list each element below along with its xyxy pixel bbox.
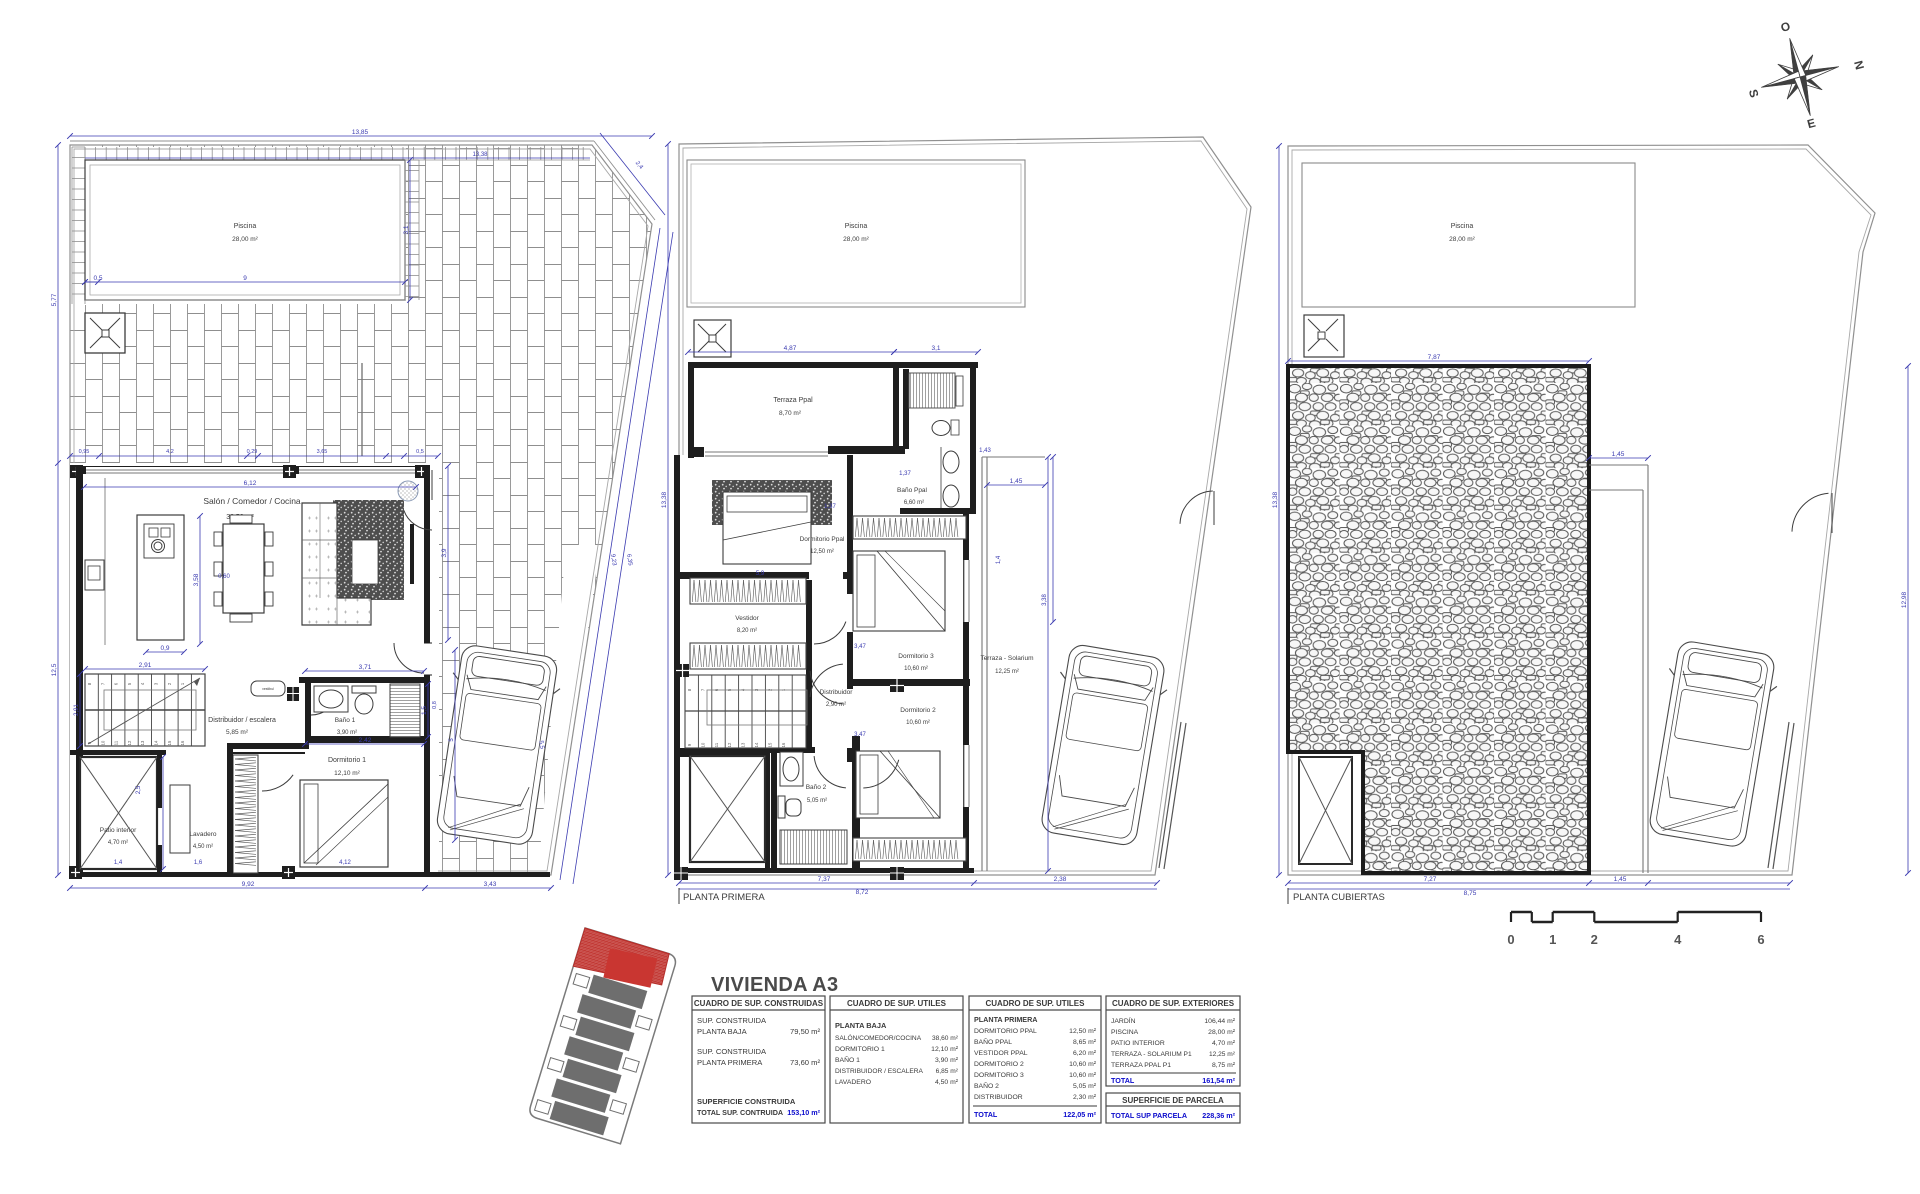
svg-text:8,20 m²: 8,20 m² bbox=[737, 628, 757, 634]
svg-text:PLANTA PRIMERA: PLANTA PRIMERA bbox=[974, 1015, 1038, 1024]
svg-text:7,87: 7,87 bbox=[1428, 354, 1441, 361]
svg-text:13,38: 13,38 bbox=[1272, 491, 1279, 508]
svg-text:1,5: 1,5 bbox=[421, 706, 428, 715]
svg-text:13,38: 13,38 bbox=[472, 152, 488, 158]
svg-text:12: 12 bbox=[727, 742, 732, 747]
svg-text:Piscina: Piscina bbox=[1451, 223, 1474, 230]
svg-text:VESTIDOR PPAL: VESTIDOR PPAL bbox=[974, 1050, 1028, 1057]
svg-text:2,91: 2,91 bbox=[74, 704, 80, 716]
svg-text:0,29: 0,29 bbox=[247, 449, 258, 455]
svg-text:CUADRO DE SUP. UTILES: CUADRO DE SUP. UTILES bbox=[847, 999, 947, 1008]
svg-text:LAVADERO: LAVADERO bbox=[835, 1079, 871, 1086]
svg-text:3,9: 3,9 bbox=[441, 548, 448, 557]
svg-text:161,54 m²: 161,54 m² bbox=[1202, 1076, 1235, 1085]
svg-text:9: 9 bbox=[243, 275, 247, 282]
svg-text:2,30 m²: 2,30 m² bbox=[1073, 1094, 1097, 1101]
svg-text:TOTAL: TOTAL bbox=[974, 1110, 998, 1119]
svg-text:16: 16 bbox=[781, 742, 786, 747]
svg-text:vestibul: vestibul bbox=[262, 687, 274, 691]
svg-text:1,45: 1,45 bbox=[1614, 876, 1627, 883]
svg-text:0,5: 0,5 bbox=[416, 449, 424, 455]
svg-text:Patio interior: Patio interior bbox=[100, 827, 137, 834]
svg-text:SUP. CONSTRUIDA: SUP. CONSTRUIDA bbox=[697, 1047, 767, 1056]
svg-text:0,8: 0,8 bbox=[432, 701, 438, 709]
svg-text:4,2: 4,2 bbox=[166, 449, 174, 455]
svg-text:4,12: 4,12 bbox=[339, 860, 351, 866]
svg-text:DORMITORIO PPAL: DORMITORIO PPAL bbox=[974, 1028, 1037, 1035]
svg-text:Dormitorio 2: Dormitorio 2 bbox=[900, 707, 936, 714]
svg-text:PLANTA CUBIERTAS: PLANTA CUBIERTAS bbox=[1293, 892, 1385, 903]
svg-text:12,98: 12,98 bbox=[1901, 591, 1908, 608]
svg-text:28,00 m²: 28,00 m² bbox=[1208, 1029, 1236, 1036]
svg-text:PATIO INTERIOR: PATIO INTERIOR bbox=[1111, 1040, 1165, 1047]
svg-text:13,85: 13,85 bbox=[352, 129, 369, 136]
svg-text:3,58: 3,58 bbox=[193, 573, 200, 586]
svg-text:122,05 m²: 122,05 m² bbox=[1063, 1110, 1096, 1119]
svg-text:10: 10 bbox=[100, 740, 105, 745]
svg-text:PLANTA BAJA: PLANTA BAJA bbox=[835, 1021, 887, 1030]
svg-text:28,00 m²: 28,00 m² bbox=[843, 236, 869, 243]
svg-text:Baño Ppal: Baño Ppal bbox=[897, 487, 928, 494]
svg-text:5,77: 5,77 bbox=[51, 293, 58, 306]
svg-text:3,65: 3,65 bbox=[317, 449, 328, 455]
svg-text:8,70 m²: 8,70 m² bbox=[779, 410, 802, 417]
svg-text:4,87: 4,87 bbox=[784, 345, 797, 352]
svg-text:11: 11 bbox=[114, 740, 119, 745]
svg-text:11: 11 bbox=[714, 742, 719, 747]
svg-text:JARDÍN: JARDÍN bbox=[1111, 1016, 1136, 1025]
svg-text:TERRAZA PPAL P1: TERRAZA PPAL P1 bbox=[1111, 1062, 1171, 1069]
svg-text:PLANTA PRIMERA: PLANTA PRIMERA bbox=[683, 892, 765, 903]
svg-text:73,60 m²: 73,60 m² bbox=[790, 1058, 820, 1067]
svg-text:5,9: 5,9 bbox=[756, 571, 765, 577]
svg-text:3,71: 3,71 bbox=[359, 664, 372, 671]
svg-text:TOTAL SUP. CONTRUIDA: TOTAL SUP. CONTRUIDA bbox=[697, 1108, 783, 1117]
svg-text:9,92: 9,92 bbox=[242, 881, 255, 888]
svg-text:0,95: 0,95 bbox=[79, 449, 90, 455]
svg-text:2: 2 bbox=[1591, 932, 1598, 947]
svg-text:28,00 m²: 28,00 m² bbox=[1449, 236, 1475, 243]
svg-text:28,00 m²: 28,00 m² bbox=[232, 236, 258, 243]
svg-text:4: 4 bbox=[1674, 932, 1682, 947]
svg-text:10,60 m²: 10,60 m² bbox=[904, 666, 928, 672]
svg-text:6,85 m²: 6,85 m² bbox=[936, 1068, 959, 1075]
svg-text:SUPERFICIE CONSTRUIDA: SUPERFICIE CONSTRUIDA bbox=[697, 1097, 796, 1106]
svg-text:Dormitorio 1: Dormitorio 1 bbox=[328, 757, 366, 764]
svg-text:13: 13 bbox=[140, 740, 145, 745]
svg-text:PISCINA: PISCINA bbox=[1111, 1029, 1139, 1036]
svg-text:3,1: 3,1 bbox=[931, 345, 940, 352]
svg-text:15: 15 bbox=[167, 740, 172, 745]
svg-text:106,44 m²: 106,44 m² bbox=[1204, 1018, 1235, 1025]
svg-text:153,10 m²: 153,10 m² bbox=[787, 1108, 820, 1117]
svg-text:TERRAZA - SOLARIUM P1: TERRAZA - SOLARIUM P1 bbox=[1111, 1051, 1192, 1058]
svg-text:1,4: 1,4 bbox=[114, 860, 123, 866]
svg-text:Piscina: Piscina bbox=[234, 223, 257, 230]
svg-text:Salón / Comedor / Cocina: Salón / Comedor / Cocina bbox=[203, 496, 301, 506]
svg-text:5,85 m²: 5,85 m² bbox=[226, 729, 249, 736]
svg-text:2,91: 2,91 bbox=[139, 662, 152, 669]
svg-text:PLANTA BAJA: PLANTA BAJA bbox=[697, 1027, 748, 1036]
svg-text:5,05 m²: 5,05 m² bbox=[1073, 1083, 1097, 1090]
svg-text:1,6: 1,6 bbox=[194, 860, 203, 866]
svg-text:BAÑO 1: BAÑO 1 bbox=[835, 1055, 860, 1064]
svg-text:Lavadero: Lavadero bbox=[189, 831, 216, 838]
svg-text:BAÑO 2: BAÑO 2 bbox=[974, 1081, 999, 1090]
svg-text:15: 15 bbox=[767, 742, 772, 747]
svg-text:3,47: 3,47 bbox=[854, 732, 866, 738]
svg-text:8,75 m²: 8,75 m² bbox=[1212, 1062, 1236, 1069]
svg-text:Baño 1: Baño 1 bbox=[335, 717, 356, 724]
svg-text:Piscina: Piscina bbox=[845, 223, 868, 230]
svg-text:4,50 m²: 4,50 m² bbox=[193, 844, 213, 850]
svg-text:3,90 m²: 3,90 m² bbox=[337, 730, 357, 736]
svg-text:0,60: 0,60 bbox=[218, 574, 230, 580]
svg-text:3,1: 3,1 bbox=[403, 225, 410, 234]
svg-text:12,50 m²: 12,50 m² bbox=[810, 549, 834, 555]
svg-text:16: 16 bbox=[180, 740, 185, 745]
svg-text:1,45: 1,45 bbox=[1010, 478, 1023, 485]
svg-text:Baño 2: Baño 2 bbox=[806, 784, 827, 791]
svg-text:7,37: 7,37 bbox=[818, 876, 831, 883]
svg-text:10: 10 bbox=[700, 742, 705, 747]
svg-text:0,9: 0,9 bbox=[160, 645, 169, 652]
svg-text:1,37: 1,37 bbox=[899, 471, 911, 477]
svg-text:7,27: 7,27 bbox=[1424, 876, 1437, 883]
svg-text:1,45: 1,45 bbox=[1612, 451, 1625, 458]
svg-text:3,38: 3,38 bbox=[1042, 594, 1048, 606]
svg-text:1,37: 1,37 bbox=[824, 504, 836, 510]
svg-text:12,25 m²: 12,25 m² bbox=[995, 669, 1019, 675]
svg-text:Distribuidor: Distribuidor bbox=[820, 689, 854, 696]
svg-text:3,90 m²: 3,90 m² bbox=[935, 1057, 959, 1064]
svg-text:13: 13 bbox=[741, 742, 746, 747]
svg-text:VIVIENDA A3: VIVIENDA A3 bbox=[711, 974, 838, 996]
svg-text:0,5: 0,5 bbox=[93, 275, 102, 282]
svg-text:5,05 m²: 5,05 m² bbox=[807, 798, 827, 804]
svg-text:4,70 m²: 4,70 m² bbox=[108, 840, 128, 846]
svg-text:3,47: 3,47 bbox=[854, 644, 866, 650]
svg-text:38,60 m²: 38,60 m² bbox=[932, 1035, 959, 1042]
svg-text:79,50 m²: 79,50 m² bbox=[790, 1027, 820, 1036]
svg-text:CUADRO DE SUP. EXTERIORES: CUADRO DE SUP. EXTERIORES bbox=[1112, 999, 1235, 1008]
svg-text:228,36 m²: 228,36 m² bbox=[1202, 1111, 1235, 1120]
svg-text:DORMITORIO 2: DORMITORIO 2 bbox=[974, 1061, 1024, 1068]
svg-text:Vestidor: Vestidor bbox=[735, 615, 759, 622]
svg-text:DISTRIBUIDOR: DISTRIBUIDOR bbox=[974, 1094, 1023, 1101]
svg-text:Terraza Ppal: Terraza Ppal bbox=[773, 397, 813, 404]
svg-text:Distribuidor / escalera: Distribuidor / escalera bbox=[208, 717, 276, 724]
svg-text:2,5: 2,5 bbox=[136, 785, 142, 794]
svg-text:TOTAL: TOTAL bbox=[1111, 1076, 1135, 1085]
svg-text:12,5: 12,5 bbox=[51, 663, 58, 676]
svg-text:8,65 m²: 8,65 m² bbox=[1073, 1039, 1097, 1046]
svg-text:PLANTA PRIMERA: PLANTA PRIMERA bbox=[697, 1058, 763, 1067]
svg-text:1: 1 bbox=[1549, 932, 1556, 947]
svg-text:SUPERFICIE DE PARCELA: SUPERFICIE DE PARCELA bbox=[1122, 1096, 1224, 1105]
svg-text:CUADRO DE SUP. UTILES: CUADRO DE SUP. UTILES bbox=[986, 999, 1086, 1008]
svg-text:6: 6 bbox=[1757, 932, 1764, 947]
svg-text:DISTRIBUIDOR / ESCALERA: DISTRIBUIDOR / ESCALERA bbox=[835, 1068, 924, 1075]
svg-text:Dormitorio Ppal: Dormitorio Ppal bbox=[800, 536, 845, 543]
svg-text:10,60 m²: 10,60 m² bbox=[1069, 1061, 1097, 1068]
svg-text:12,10 m²: 12,10 m² bbox=[334, 770, 360, 777]
svg-text:8,72: 8,72 bbox=[856, 889, 869, 896]
svg-text:10,60 m²: 10,60 m² bbox=[1069, 1072, 1097, 1079]
svg-text:BAÑO PPAL: BAÑO PPAL bbox=[974, 1037, 1012, 1046]
svg-text:Terraza - Solarium: Terraza - Solarium bbox=[980, 655, 1033, 662]
svg-text:SUP. CONSTRUIDA: SUP. CONSTRUIDA bbox=[697, 1016, 767, 1025]
svg-text:6,20 m²: 6,20 m² bbox=[1073, 1050, 1097, 1057]
svg-text:DORMITORIO 1: DORMITORIO 1 bbox=[835, 1046, 885, 1053]
svg-text:2,38: 2,38 bbox=[1054, 876, 1067, 883]
svg-text:12,50 m²: 12,50 m² bbox=[1069, 1028, 1097, 1035]
svg-text:14: 14 bbox=[154, 740, 159, 745]
svg-text:14: 14 bbox=[754, 742, 759, 747]
svg-text:12,25 m²: 12,25 m² bbox=[1209, 1051, 1236, 1058]
svg-text:CUADRO DE SUP. CONSTRUIDAS: CUADRO DE SUP. CONSTRUIDAS bbox=[694, 999, 824, 1008]
svg-text:1,43: 1,43 bbox=[979, 448, 991, 454]
svg-text:6,60 m²: 6,60 m² bbox=[904, 500, 924, 506]
svg-text:3,43: 3,43 bbox=[484, 881, 497, 888]
svg-text:TOTAL SUP PARCELA: TOTAL SUP PARCELA bbox=[1111, 1111, 1187, 1120]
svg-text:DORMITORIO 3: DORMITORIO 3 bbox=[974, 1072, 1024, 1079]
svg-text:12: 12 bbox=[127, 740, 132, 745]
svg-text:8,75: 8,75 bbox=[1464, 890, 1477, 897]
svg-text:6,12: 6,12 bbox=[244, 480, 257, 487]
svg-text:4,70 m²: 4,70 m² bbox=[1212, 1040, 1236, 1047]
svg-text:0: 0 bbox=[1507, 932, 1514, 947]
svg-text:Dormitorio 3: Dormitorio 3 bbox=[898, 653, 934, 660]
svg-text:13,38: 13,38 bbox=[661, 491, 668, 508]
svg-text:2,42: 2,42 bbox=[359, 737, 372, 744]
svg-text:1,4: 1,4 bbox=[996, 555, 1002, 564]
svg-text:SALÓN/COMEDOR/COCINA: SALÓN/COMEDOR/COCINA bbox=[835, 1033, 922, 1042]
svg-text:4,50 m²: 4,50 m² bbox=[935, 1079, 959, 1086]
svg-text:10,60 m²: 10,60 m² bbox=[906, 720, 930, 726]
svg-text:12,10 m²: 12,10 m² bbox=[931, 1046, 959, 1053]
